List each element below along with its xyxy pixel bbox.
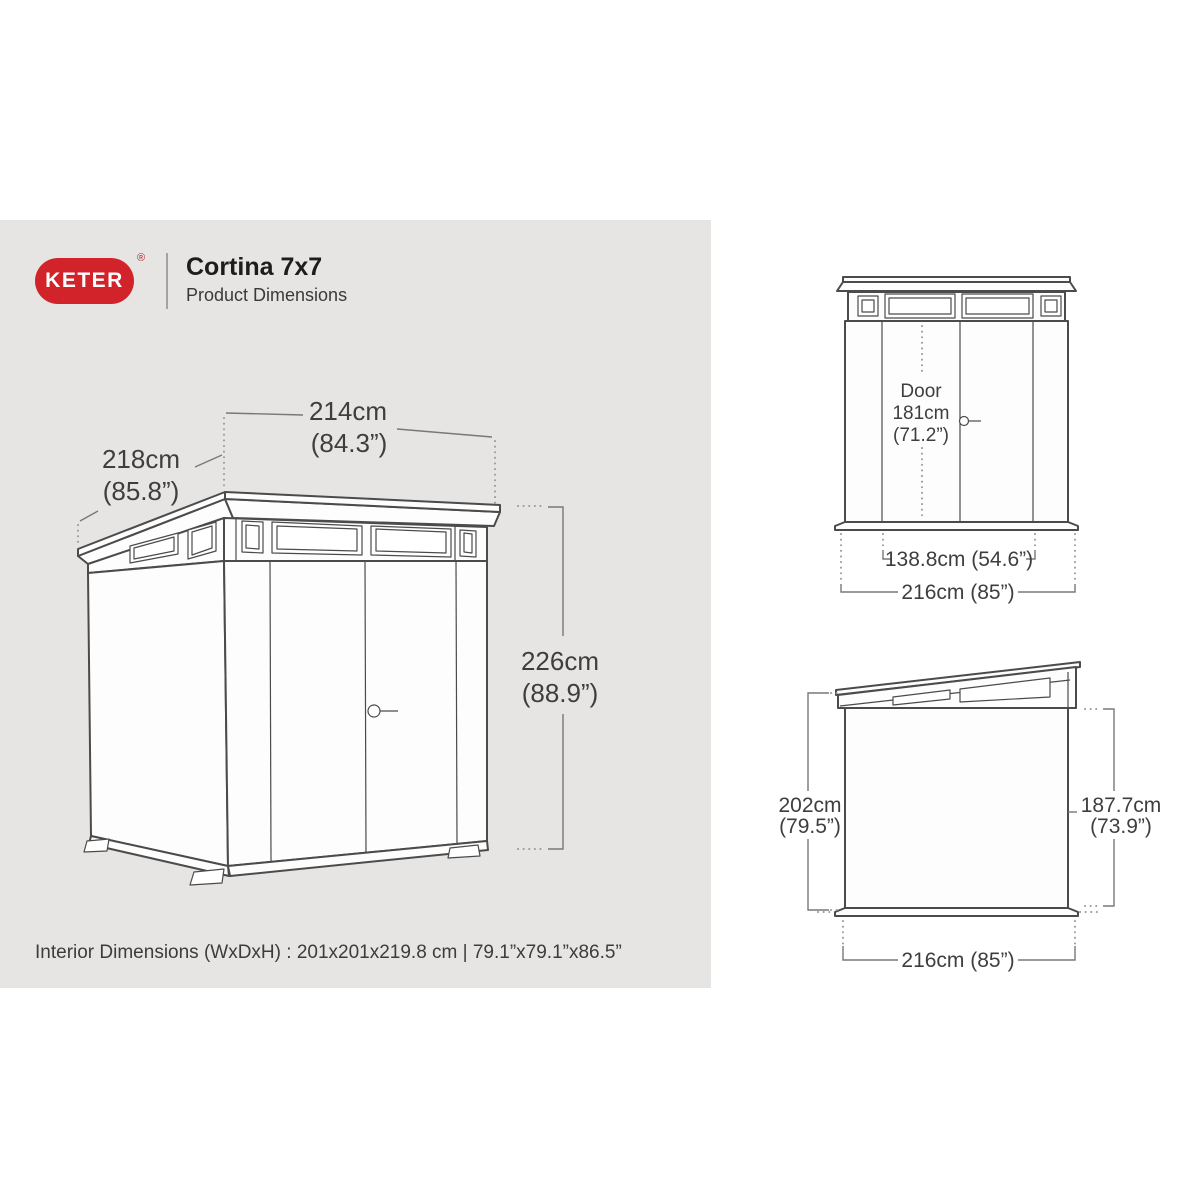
door-label-line3: (71.2”) [893,425,949,446]
width-leader-right [397,429,492,437]
side-left-dim-bottom [808,839,829,910]
product-dimensions-sheet: KETER ® Cortina 7x7 Product Dimensions [0,0,1200,1200]
door-handle [368,705,380,717]
side-depth-label: 216cm (85”) [901,949,1014,972]
width-label-cm: 214cm [309,396,387,426]
shed-foot-left [190,869,224,885]
depth-label-cm: 218cm [102,444,180,474]
shed-front-wall [224,561,487,866]
side-plinth [835,908,1078,916]
front-window-sq1 [858,296,878,316]
side-right-height-cm: 187.7cm [1081,794,1162,817]
shed-left-wall [88,561,228,866]
page-title: Cortina 7x7 [186,253,322,282]
side-right-height-in: (73.9”) [1090,815,1152,838]
width-leader-left [226,413,303,415]
keter-logo-text: KETER [45,269,124,293]
front-window-sq2 [1041,296,1061,316]
front-view-drawing: Door 181cm (71.2”) 138.8cm (54.6”) 216cm… [810,250,1200,620]
side-left-height-cm: 202cm [778,794,841,817]
header-divider [166,253,168,309]
side-depth-line-left [843,946,898,960]
side-wall [845,708,1068,908]
front-cornice-flare [837,282,1076,291]
keter-logo: KETER [35,258,134,304]
front-wall [845,321,1068,522]
side-left-height-in: (79.5”) [779,815,841,838]
side-view-drawing: 216cm (85”) 202cm (79.5”) 187.7cm (73.9”… [750,640,1200,985]
width-label-in: (84.3”) [311,428,388,458]
depth-leader-bottom [80,511,98,521]
height-label-cm: 226cm [521,646,599,676]
front-plinth [835,522,1078,530]
overall-width-line-left [841,584,898,592]
perspective-view-drawing: 214cm (84.3”) 218cm (85.8”) 226cm (88.9”… [0,380,711,950]
overall-width-label: 216cm (85”) [901,581,1014,604]
side-depth-line-right [1018,946,1075,960]
door-label-line2: 181cm [892,403,949,424]
height-label-in: (88.9”) [522,678,599,708]
height-line-bottom [548,714,563,849]
depth-leader-top [195,455,222,467]
shed-foot-back [84,839,109,852]
front-door-handle [960,417,969,426]
door-label-line1: Door [900,381,942,402]
side-left-dim-top [808,693,829,791]
overall-width-line-right [1018,584,1075,592]
door-width-label: 138.8cm (54.6”) [885,548,1033,571]
depth-label-in: (85.8”) [103,476,180,506]
interior-dimensions-text: Interior Dimensions (WxDxH) : 201x201x21… [35,942,622,964]
height-line-top [548,507,563,636]
side-right-dim-top [1103,709,1114,791]
registered-trademark-icon: ® [137,252,145,264]
page-subtitle: Product Dimensions [186,285,347,306]
side-right-dim-bottom [1103,839,1114,906]
